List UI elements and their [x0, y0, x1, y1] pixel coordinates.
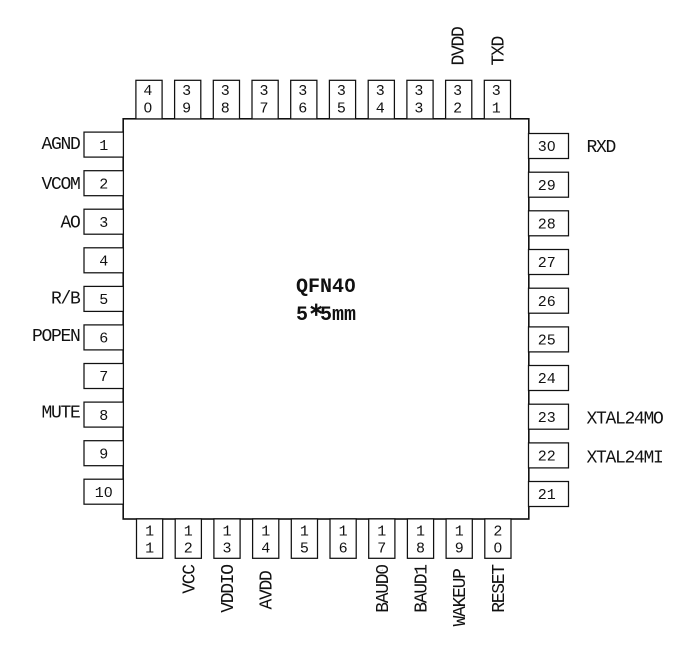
svg-text:9: 9 — [99, 446, 108, 463]
svg-text:3: 3 — [99, 215, 108, 232]
svg-text:7: 7 — [259, 100, 268, 117]
svg-text:3: 3 — [453, 83, 462, 100]
svg-text:1: 1 — [339, 524, 348, 541]
svg-text:4: 4 — [261, 541, 270, 558]
svg-text:VCOM: VCOM — [41, 175, 80, 195]
svg-text:1: 1 — [145, 524, 154, 541]
svg-text:1: 1 — [377, 524, 386, 541]
svg-text:2: 2 — [99, 176, 108, 193]
svg-text:MUTE: MUTE — [41, 404, 80, 424]
svg-text:0: 0 — [143, 100, 152, 117]
svg-text:4: 4 — [143, 83, 152, 100]
svg-text:TXD: TXD — [489, 36, 509, 65]
svg-text:RESET: RESET — [490, 564, 510, 613]
svg-text:3: 3 — [414, 83, 423, 100]
svg-text:25: 25 — [538, 333, 556, 350]
svg-text:9: 9 — [455, 541, 464, 558]
svg-text:23: 23 — [538, 410, 556, 427]
svg-text:2: 2 — [453, 100, 462, 117]
svg-text:AGND: AGND — [41, 135, 80, 155]
svg-text:1: 1 — [492, 100, 501, 117]
svg-text:9: 9 — [182, 100, 191, 117]
svg-text:5 5mm: 5 5mm — [296, 304, 356, 327]
svg-text:DVDD: DVDD — [450, 27, 470, 66]
svg-text:30: 30 — [538, 139, 556, 156]
svg-text:XTAL24MI: XTAL24MI — [587, 449, 664, 469]
svg-text:24: 24 — [538, 371, 556, 388]
svg-text:BAUD0: BAUD0 — [374, 565, 394, 613]
svg-text:1: 1 — [455, 524, 464, 541]
svg-text:BAUD1: BAUD1 — [413, 565, 433, 613]
svg-text:VDDIO: VDDIO — [219, 565, 239, 613]
svg-text:XTAL24MO: XTAL24MO — [587, 410, 664, 430]
svg-text:7: 7 — [99, 369, 108, 386]
svg-text:4: 4 — [99, 254, 108, 271]
svg-text:3: 3 — [492, 83, 501, 100]
svg-text:1: 1 — [145, 541, 154, 558]
svg-text:7: 7 — [377, 541, 386, 558]
svg-text:3: 3 — [376, 83, 385, 100]
svg-text:5: 5 — [300, 541, 309, 558]
svg-text:8: 8 — [99, 408, 108, 425]
svg-text:8: 8 — [416, 541, 425, 558]
svg-text:VCC: VCC — [180, 564, 200, 594]
svg-text:3: 3 — [337, 83, 346, 100]
svg-text:3: 3 — [221, 83, 230, 100]
svg-text:5: 5 — [99, 292, 108, 309]
svg-text:3: 3 — [259, 83, 268, 100]
svg-text:27: 27 — [538, 255, 556, 272]
svg-text:5: 5 — [337, 100, 346, 117]
svg-text:28: 28 — [538, 217, 556, 234]
svg-text:1: 1 — [261, 524, 270, 541]
svg-text:6: 6 — [339, 541, 348, 558]
svg-text:29: 29 — [538, 178, 556, 195]
svg-text:POPEN: POPEN — [32, 327, 80, 347]
svg-text:21: 21 — [538, 487, 556, 504]
svg-text:1: 1 — [300, 524, 309, 541]
svg-text:6: 6 — [99, 331, 108, 348]
svg-text:3: 3 — [298, 83, 307, 100]
svg-text:22: 22 — [538, 449, 556, 466]
svg-text:10: 10 — [95, 485, 113, 502]
svg-text:2: 2 — [184, 541, 193, 558]
svg-text:1: 1 — [222, 524, 231, 541]
svg-text:3: 3 — [414, 100, 423, 117]
svg-text:3: 3 — [222, 541, 231, 558]
svg-text:1: 1 — [184, 524, 193, 541]
svg-text:4: 4 — [376, 100, 385, 117]
svg-text:R/B: R/B — [51, 290, 81, 310]
svg-text:3: 3 — [182, 83, 191, 100]
svg-text:8: 8 — [221, 100, 230, 117]
svg-text:AVDD: AVDD — [258, 571, 278, 610]
svg-text:WAKEUP: WAKEUP — [451, 569, 471, 627]
svg-text:2: 2 — [493, 524, 502, 541]
svg-text:6: 6 — [298, 100, 307, 117]
svg-text:26: 26 — [538, 294, 556, 311]
svg-text:RXD: RXD — [587, 138, 616, 158]
svg-text:1: 1 — [416, 524, 425, 541]
svg-text:AO: AO — [60, 213, 80, 233]
svg-text:1: 1 — [99, 138, 108, 155]
svg-text:QFN40: QFN40 — [296, 276, 356, 299]
